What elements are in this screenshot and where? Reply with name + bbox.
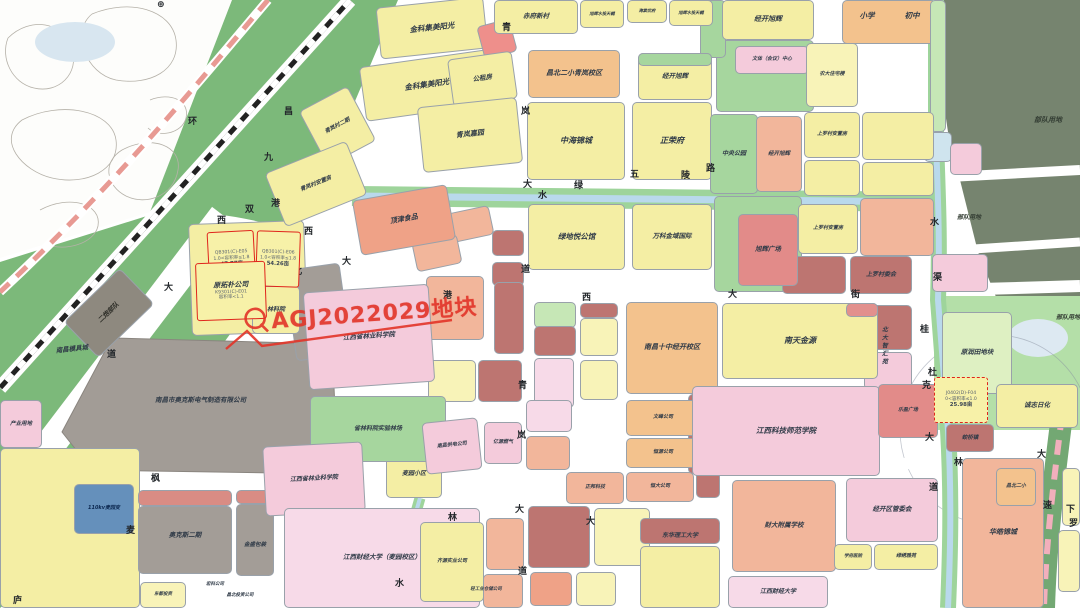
map-parcel: 中央公园 (710, 114, 758, 194)
map-parcel: 昌北二小 (996, 468, 1036, 506)
road-name-char: 大 (586, 514, 595, 527)
map-parcel: 初中 (892, 6, 932, 26)
road-name-char: 街 (851, 287, 860, 300)
road-name-char: 麦 (126, 523, 135, 536)
parcel-label: 青岚村安置房 (300, 175, 333, 193)
parcel-label: 经开旭辉 (754, 16, 782, 24)
road-name-char: 下 (1066, 502, 1075, 515)
map-parcel: 青岚村安置房 (264, 141, 367, 228)
parcel-label: 诚志日化 (1024, 402, 1050, 409)
map-parcel: 文体（会议）中心 (735, 46, 809, 74)
parcel-label: 部队用地 (957, 215, 981, 222)
parcel-label: 旭辉广场 (755, 246, 781, 253)
map-parcel: 万科金域国际 (632, 204, 712, 270)
map-parcel: 上罗村安置房 (798, 204, 858, 254)
parcel-label: 正荣府 (660, 137, 684, 146)
parcel-label: 部队用地 (1034, 117, 1062, 125)
parcel-label: 青岚嘉园 (456, 130, 485, 141)
parcel-label: 江西科技师范学院 (756, 427, 816, 435)
map-parcel: 昌北投资公司 (208, 590, 272, 602)
map-parcel-unlabeled (580, 303, 618, 318)
road-name-char: 西 (582, 290, 591, 303)
map-parcel-unlabeled (640, 546, 720, 608)
parcel-label: 农大住宅楼 (819, 72, 844, 78)
parcel-label: 蛟桥镇 (962, 435, 979, 441)
map-parcel: 旭辉水投天樾 (580, 0, 624, 28)
parcel-label: 上罗村安置房 (813, 226, 843, 232)
parcel-label: 昌北二小 (1006, 484, 1026, 490)
parcel-label: 上罗村安置房 (817, 132, 847, 138)
map-parcel: 中海锦城 (527, 102, 625, 180)
map-parcel-unlabeled (930, 0, 946, 132)
parcel-label: 轻工业仓储公司 (470, 587, 502, 592)
parcel-label: 金盛包装 (244, 542, 266, 548)
road-name-char: 青 (502, 20, 511, 33)
map-parcel: 旭辉广场 (738, 214, 798, 286)
road-name-char: 道 (518, 564, 527, 577)
parcel-label: 北大智汇苑 (880, 326, 887, 366)
parcel-label: 原润田地块 (961, 349, 994, 356)
map-parcel: 奥克斯二期 (138, 528, 232, 544)
map-parcel: 江西财经大学 (728, 576, 828, 608)
road-name-char: 绿 (574, 178, 583, 191)
map-parcel: 南昌十中经开校区 (626, 302, 718, 394)
map-parcel: 文峰公司 (626, 400, 700, 436)
road-name-char: 水 (930, 215, 939, 228)
road-name-char: 大 (728, 287, 737, 300)
parcel-label: 南昌模具城 (55, 345, 88, 356)
parcel-label: 金科集美阳光 (409, 21, 455, 34)
road-name-char: 道 (107, 347, 116, 360)
parcel-label: 南昌十中经开校区 (644, 344, 700, 352)
map-parcel: 产业用地 (0, 400, 42, 448)
road-name-char: 桂 (920, 322, 929, 335)
circle-q-icon (242, 304, 270, 336)
road-name-char: 西 (304, 224, 313, 237)
map-parcel-unlabeled (580, 360, 618, 400)
road-name-char: 路 (706, 161, 715, 174)
road-name-char: 港 (271, 196, 280, 209)
map-parcel: 旭辉水投天樾 (669, 0, 713, 26)
road-name-char: 陵 (681, 168, 690, 181)
map-parcel: 部队用地 (1038, 310, 1080, 326)
map-parcel: 海棠优府 (627, 0, 667, 23)
parcel-label: 昌北投资公司 (227, 593, 254, 598)
parcel-label: 亿源燃气 (493, 440, 513, 446)
map-parcel-unlabeled (492, 230, 524, 256)
road-name-char: ⊕ (157, 0, 165, 10)
map-parcel-unlabeled (526, 400, 572, 432)
subject-parcel-code: 容积率<1.1 (219, 295, 244, 302)
map-parcel: 金盛包装 (236, 538, 274, 552)
parcel-label: 齐源实业公司 (437, 559, 467, 565)
map-parcel: 青岚嘉园 (417, 97, 523, 173)
parcel-label: 绿绣雅苑 (896, 554, 916, 560)
map-parcel: 昌北二小青岚校区 (528, 50, 620, 98)
map-parcel: 小学 (848, 6, 886, 26)
subject-parcel-area: 54.26亩 (266, 261, 289, 269)
map-parcel: 上罗村安置房 (804, 112, 860, 158)
parcel-label: 小学 (860, 12, 875, 20)
parcel-label: 经开旭辉 (768, 151, 790, 157)
parcel-label: 上罗村委会 (866, 272, 896, 279)
road-name-char: 环 (188, 114, 197, 127)
map-parcel: 东都投资 (140, 582, 186, 608)
road-name-char: 渠 (933, 270, 942, 283)
map-parcel-unlabeled (478, 360, 522, 402)
parcel-label: 正邦科技 (585, 485, 605, 491)
parcel-label: 恒大公司 (650, 484, 670, 490)
road-name-char: 大 (515, 502, 524, 515)
map-parcel-unlabeled (526, 436, 570, 470)
road-name-char: 林 (954, 455, 963, 468)
parcel-label: 学府医院 (844, 554, 862, 559)
parcel-label: 江西财经大学 (760, 589, 796, 596)
road-name-char: 速 (1043, 498, 1052, 511)
parcel-label: 财大附属学校 (765, 522, 804, 529)
map-parcel: 110kv麦园变 (74, 484, 134, 534)
parcel-label: 南昌供电公司 (437, 442, 467, 451)
parcel-label: 南天金源 (784, 337, 816, 346)
road-name-char: 水 (538, 188, 547, 201)
map-parcel-unlabeled (804, 160, 860, 196)
map-parcel: 南昌模具城 (37, 338, 106, 361)
road-name-char: 五 (630, 167, 639, 180)
parcel-label: 顶津食品 (390, 214, 419, 227)
map-parcel: 轻工业仓储公司 (446, 584, 526, 596)
road-name-char: 克 (922, 378, 931, 391)
road-name-char: 双 (245, 202, 254, 215)
road-name-char: 大 (925, 430, 934, 443)
parcel-label: 公租房 (472, 74, 492, 84)
road-name-char: 青 (518, 378, 527, 391)
map-parcel: 农大住宅楼 (806, 43, 858, 107)
parcel-label: 江西财经大学（麦园校区） (343, 554, 421, 561)
parcel-label: 江西省林业科学院 (343, 332, 395, 343)
map-parcel: 学府医院 (834, 544, 872, 570)
parcel-label: 文体（会议）中心 (752, 57, 792, 63)
map-parcel-unlabeled (638, 53, 712, 66)
parcel-label: 中央公园 (722, 151, 746, 158)
parcel-layer: 金科集美阳光金科集美阳光公租房青岚嘉园青岚村二期青岚村安置房顶津食品赤府新村旭辉… (0, 0, 1080, 608)
road-name-char: 大 (1037, 447, 1046, 460)
parcel-label: 旭辉水投天樾 (678, 11, 703, 16)
parcel-label: 110kv麦园变 (88, 506, 120, 512)
map-parcel: 北大智汇苑 (874, 310, 892, 382)
parcel-label: 金科集美阳光 (404, 78, 450, 93)
parcel-label: 经开旭辉 (662, 73, 688, 80)
map-parcel: 部队用地 (938, 210, 1000, 226)
road-name-char: 大 (164, 280, 173, 293)
map-parcel: 诚志日化 (996, 384, 1078, 428)
parcel-label: 赤府新村 (523, 13, 549, 20)
road-name-char: 道 (929, 480, 938, 493)
map-parcel: 江西科技师范学院 (692, 386, 880, 476)
map-parcel: 东华理工大学 (640, 528, 720, 544)
parcel-label: 乐盈广场 (898, 408, 918, 414)
parcel-label: 麦园小区 (402, 471, 426, 478)
map-parcel: 经开旭辉 (756, 116, 802, 192)
road-name-char: 大 (342, 254, 351, 267)
parcel-label: 江西省林业科学院 (290, 474, 338, 483)
map-parcel: 恒源公司 (626, 438, 700, 468)
parcel-label: 二炮部队 (97, 301, 121, 324)
map-parcel-unlabeled (486, 518, 524, 570)
map-parcel-unlabeled (494, 282, 524, 354)
map-parcel-unlabeled (950, 143, 982, 175)
map-parcel-unlabeled (138, 490, 232, 506)
parcel-label: 初中 (905, 12, 920, 20)
map-parcel-unlabeled (862, 112, 934, 160)
map-parcel-unlabeled (534, 326, 576, 356)
parcel-label: 绿地悦公馆 (558, 233, 596, 241)
map-parcel: 正荣府 (632, 102, 712, 180)
map-parcel: 绿绣雅苑 (874, 544, 938, 570)
road-name-char: 大 (523, 177, 532, 190)
map-parcel: 经开区管委会 (846, 478, 938, 542)
parcel-label: 华皓锦城 (989, 529, 1017, 537)
parcel-label: 恒源公司 (653, 450, 673, 456)
parcel-label: 南昌市奥克斯电气制造有限公司 (155, 397, 246, 404)
subject-parcel-area: 25.98亩 (950, 402, 972, 409)
map-parcel: 部队用地 (1012, 112, 1080, 130)
map-parcel: 南昌供电公司 (421, 417, 482, 475)
parcel-label: 万科金域国际 (653, 233, 692, 240)
map-parcel: 绿地悦公馆 (528, 204, 625, 270)
parcel-label: 中海锦城 (560, 137, 592, 146)
map-parcel: 江西省林业科学院 (262, 441, 366, 516)
parcel-label: 部队用地 (1056, 315, 1080, 322)
road-name-char: 庐 (13, 593, 22, 606)
map-parcel: 正邦科技 (566, 472, 624, 504)
parcel-label: 经开区管委会 (873, 506, 912, 513)
road-name-char: 岚 (521, 104, 530, 117)
parcel-label: 奥克斯二期 (169, 532, 202, 539)
parcel-label: 宏科公司 (206, 582, 224, 587)
parcel-label: 海棠优府 (639, 9, 656, 14)
map-parcel-unlabeled (576, 572, 616, 606)
road-name-char: 岚 (517, 428, 526, 441)
map-parcel-unlabeled (1058, 530, 1080, 592)
road-name-char: 罗 (1069, 516, 1078, 529)
road-name-char: 昌 (284, 104, 293, 117)
planning-map: 金科集美阳光金科集美阳光公租房青岚嘉园青岚村二期青岚村安置房顶津食品赤府新村旭辉… (0, 0, 1080, 608)
road-name-char: 道 (521, 262, 530, 275)
road-name-char: 西 (217, 213, 226, 226)
map-parcel: 经开旭辉 (722, 0, 814, 40)
subject-land-parcel: J0402(D)-F040<容积率≤1.025.98亩 (934, 377, 988, 423)
map-parcel: 恒大公司 (626, 472, 694, 502)
parcel-label: 文峰公司 (653, 415, 673, 421)
map-parcel-unlabeled (860, 198, 934, 256)
parcel-label: 产业用地 (10, 421, 32, 427)
parcel-label: 东华理工大学 (662, 533, 698, 540)
parcel-label: 东都投资 (154, 592, 172, 597)
map-parcel-unlabeled (528, 506, 590, 568)
road-name-char: 枫 (151, 471, 160, 484)
map-parcel: 财大附属学校 (732, 480, 836, 572)
road-name-char: 林 (448, 510, 457, 523)
road-name-char: 九 (264, 150, 273, 163)
map-parcel: 南昌市奥克斯电气制造有限公司 (108, 394, 293, 408)
map-parcel-unlabeled (580, 318, 618, 356)
map-parcel-unlabeled (530, 572, 572, 606)
road-name-char: 水 (395, 576, 404, 589)
parcel-label: 昌北二小青岚校区 (546, 70, 602, 78)
map-parcel-unlabeled (862, 162, 934, 196)
parcel-label: 省林科院实验林场 (354, 426, 402, 433)
map-parcel: 蛟桥镇 (946, 424, 994, 452)
parcel-label: 旭辉水投天樾 (589, 12, 614, 17)
map-parcel-unlabeled (534, 302, 576, 328)
parcel-label: 青岚村二期 (324, 117, 351, 135)
